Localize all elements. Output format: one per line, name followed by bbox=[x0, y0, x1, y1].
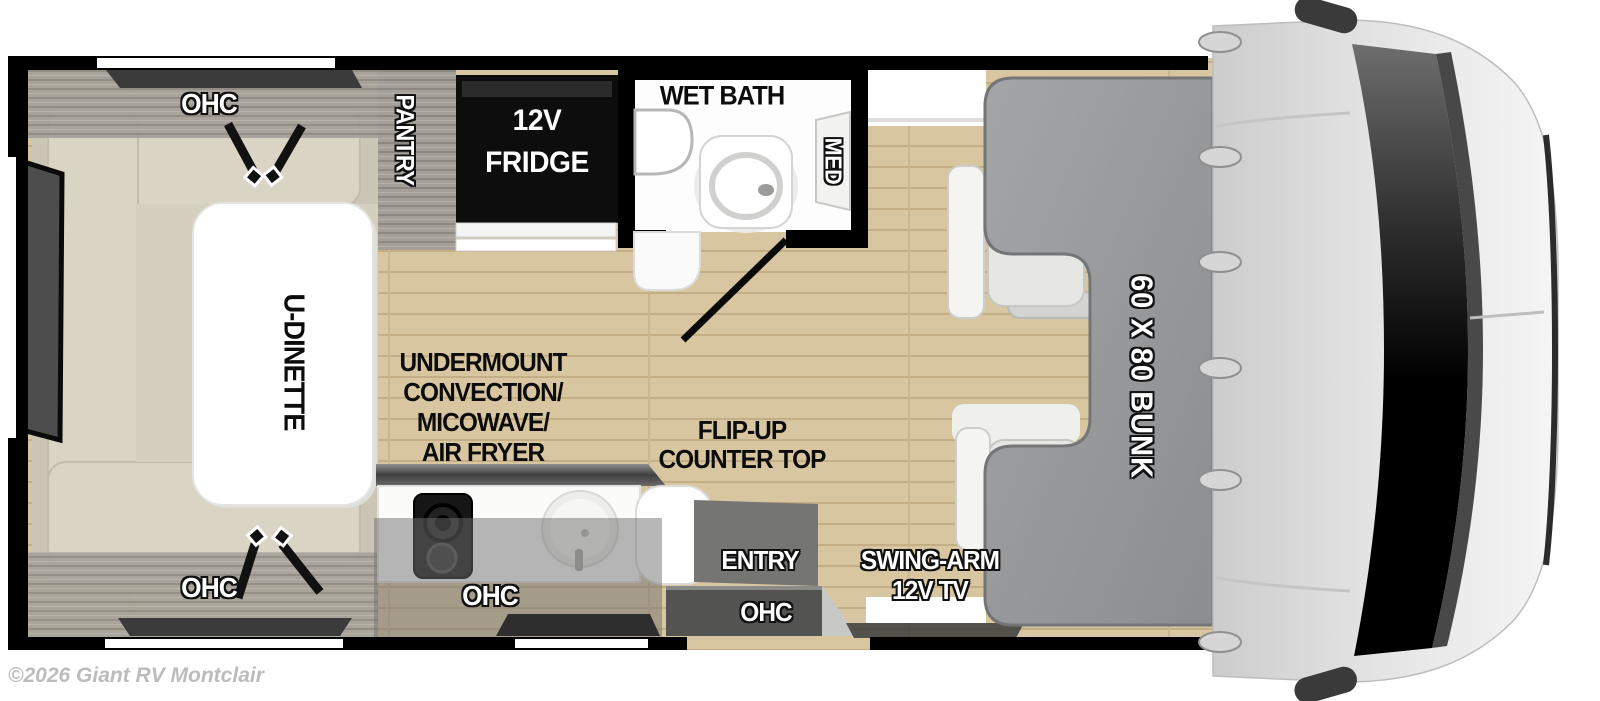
rv-floorplan-diagram: OHC OHC PANTRY 12V FRIDGE WET BATH MED U… bbox=[0, 0, 1600, 701]
window-bottom-kitchen bbox=[515, 639, 648, 648]
cab-front bbox=[1213, 0, 1558, 701]
floorplan-graphics bbox=[0, 0, 1600, 701]
u-dinette-label: U-DINETTE bbox=[279, 294, 308, 431]
ohc-label-kitchen: OHC bbox=[462, 582, 518, 610]
entry-label: ENTRY bbox=[721, 547, 798, 573]
ohc-label-dinette-top: OHC bbox=[181, 90, 237, 118]
window-bottom-left bbox=[105, 639, 343, 648]
med-label: MED bbox=[822, 138, 845, 185]
awning-strip-bottom bbox=[118, 618, 352, 636]
wet-bath-label: WET BATH bbox=[660, 83, 785, 110]
bath-vestibule bbox=[634, 232, 700, 290]
kitchen-mat bbox=[496, 614, 660, 636]
watermark: ©2026 Giant RV Montclair bbox=[8, 664, 264, 688]
ohc-label-entry: OHC bbox=[740, 599, 791, 625]
undermount-appliance-label: UNDERMOUNT CONVECTION/ MICOWAVE/ AIR FRY… bbox=[399, 347, 566, 467]
corner-sink bbox=[635, 110, 692, 174]
cabover-shelf bbox=[866, 62, 986, 126]
fridge-label: 12V FRIDGE bbox=[485, 100, 589, 184]
flip-up-counter-label: FLIP-UP COUNTER TOP bbox=[658, 416, 825, 474]
swing-arm-tv-label: SWING-ARM 12V TV bbox=[861, 545, 999, 605]
ohc-label-dinette-bottom: OHC bbox=[181, 574, 237, 602]
pantry-label: PANTRY bbox=[392, 94, 417, 185]
window-top bbox=[97, 58, 335, 68]
tv-mat bbox=[846, 623, 1024, 638]
awning-strip-top bbox=[106, 70, 362, 88]
bunk-label: 60 X 80 BUNK bbox=[1127, 275, 1158, 479]
window-rear bbox=[8, 157, 16, 438]
